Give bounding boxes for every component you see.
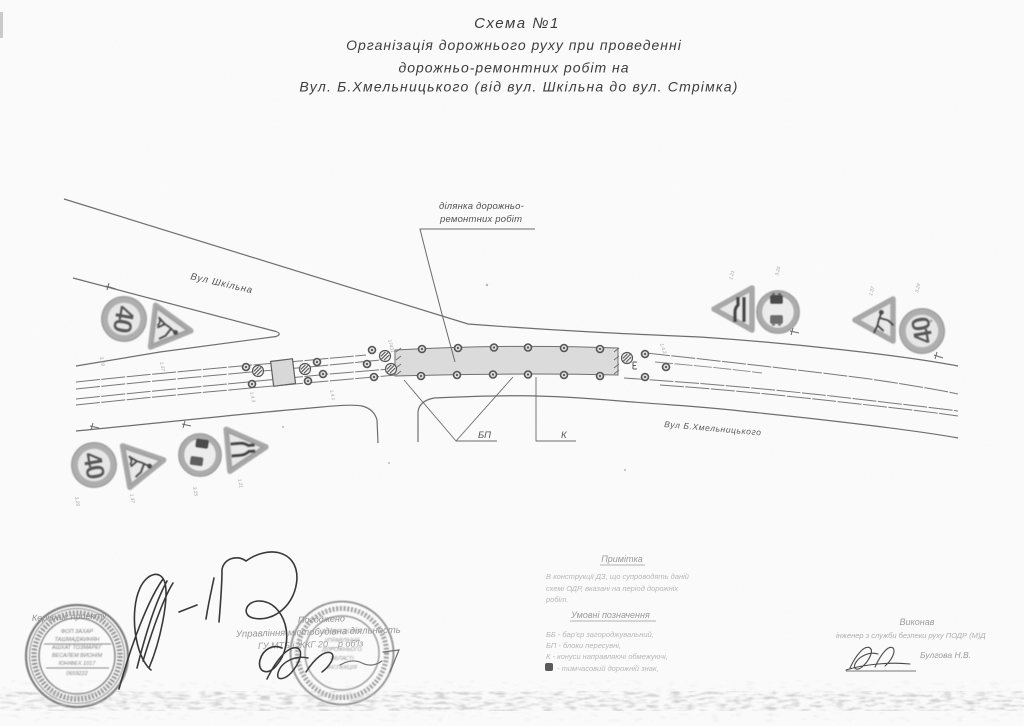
svg-text:- тимчасовий дорожній знак,: - тимчасовий дорожній знак,: [557, 664, 659, 673]
svg-text:БП: БП: [478, 430, 491, 441]
svg-text:робіт.: робіт.: [545, 595, 568, 604]
svg-text:схемі ОДР, вказані на період д: схемі ОДР, вказані на період дорожніх: [546, 584, 678, 593]
svg-text:ВЕСАЛЕМ ВИОНІМ: ВЕСАЛЕМ ВИОНІМ: [52, 653, 103, 659]
svg-text:дорожньо-ремонтних робіт на: дорожньо-ремонтних робіт на: [398, 60, 629, 76]
svg-text:0659222: 0659222: [66, 671, 87, 677]
svg-text:Організація дорожнього руху пр: Організація дорожнього руху при проведен…: [346, 37, 682, 53]
svg-text:Вул. Б.Хмельницького (від вул.: Вул. Б.Хмельницького (від вул. Шкільна д…: [299, 79, 738, 95]
svg-text:Булгова Н.В.: Булгова Н.В.: [920, 650, 971, 660]
svg-text:Погоджено: Погоджено: [298, 613, 345, 625]
svg-text:АШХАТ ТОЗМАРЕГ: АШХАТ ТОЗМАРЕГ: [51, 645, 103, 651]
svg-text:ББ - бар'єр загороджувальний,: ББ - бар'єр загороджувальний,: [546, 630, 654, 639]
svg-text:БП - блоки пересувні,: БП - блоки пересувні,: [546, 641, 621, 650]
svg-text:К - конуси направляючі обмежую: К - конуси направляючі обмежуючі,: [546, 652, 668, 661]
svg-text:ЮНІФЕХ 1017: ЮНІФЕХ 1017: [59, 661, 97, 667]
svg-text:Схема №1: Схема №1: [474, 15, 560, 32]
svg-text:ремонтних робіт: ремонтних робіт: [439, 214, 522, 225]
svg-text:інженер з служби безпеки руху: інженер з служби безпеки руху ПОДР (М)Д: [836, 631, 986, 640]
svg-text:ІНСПЕКЦІЯ: ІНСПЕКЦІЯ: [327, 665, 357, 671]
svg-text:В конструкції ДЗ, що супроводя: В конструкції ДЗ, що супроводять даній: [546, 572, 690, 581]
svg-text:Виконав: Виконав: [900, 617, 935, 627]
svg-text:ФОП ЗАХАР: ФОП ЗАХАР: [61, 629, 94, 635]
svg-text:Умовні позначення: Умовні позначення: [570, 610, 650, 620]
svg-text:ділянка дорожньо-: ділянка дорожньо-: [439, 201, 524, 212]
svg-text:Примітка: Примітка: [601, 554, 642, 564]
svg-text:ТАШМАДЖИНЯН: ТАШМАДЖИНЯН: [55, 637, 100, 643]
